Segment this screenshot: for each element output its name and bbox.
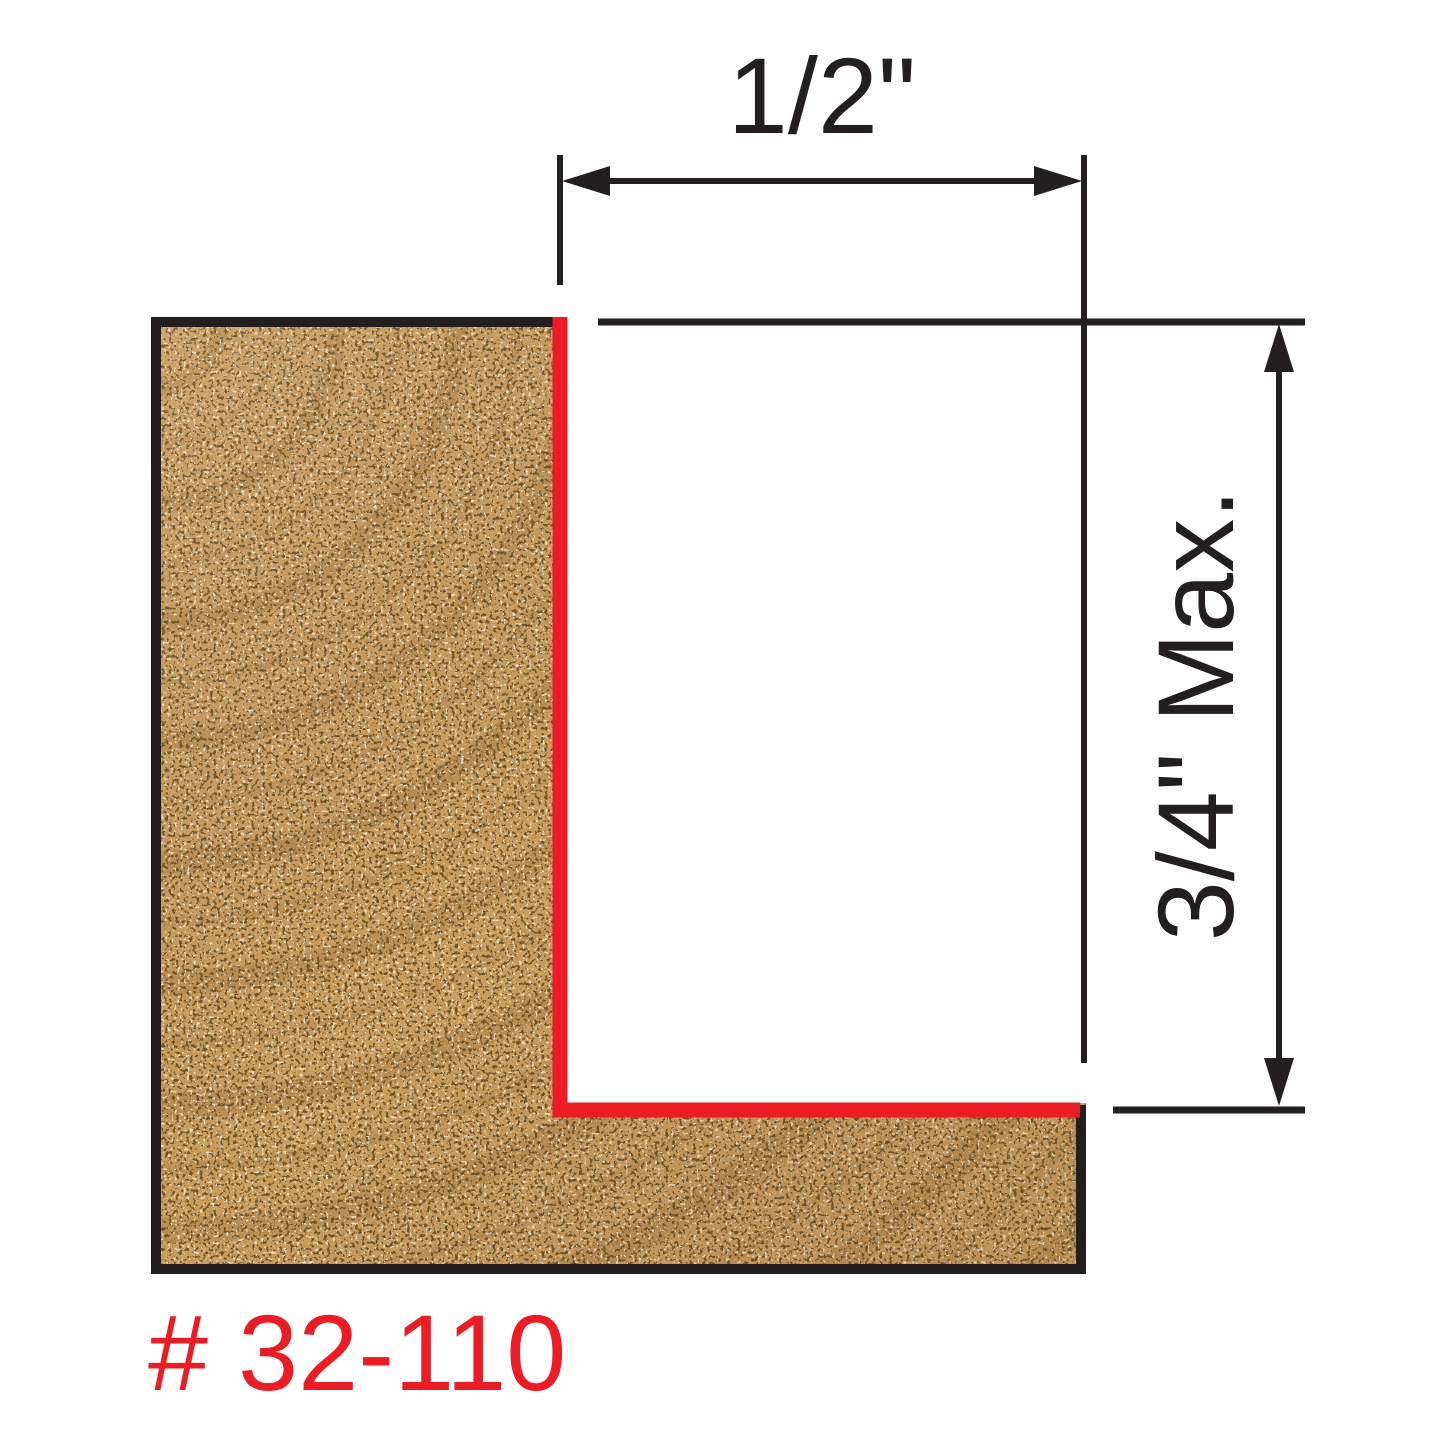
- arrowhead-left-icon: [562, 166, 610, 196]
- width-dimension-arrow: [562, 166, 1082, 196]
- rabbet-cut-line: [560, 317, 1080, 1110]
- arrowhead-right-icon: [1034, 166, 1082, 196]
- depth-dimension: 3/4" Max.: [598, 322, 1305, 1110]
- width-dimension: 1/2": [560, 35, 1084, 1063]
- width-dimension-label: 1/2": [728, 35, 916, 156]
- arrowhead-down-icon: [1264, 1058, 1294, 1106]
- diagram-canvas: 1/2" 3/4" Max. # 32-110: [0, 0, 1445, 1445]
- depth-dimension-label: 3/4" Max.: [1135, 489, 1256, 942]
- part-number-label: # 32-110: [148, 1292, 566, 1413]
- arrowhead-up-icon: [1264, 324, 1294, 372]
- depth-dimension-arrow: [1264, 324, 1294, 1106]
- wood-shading: [152, 318, 1090, 1278]
